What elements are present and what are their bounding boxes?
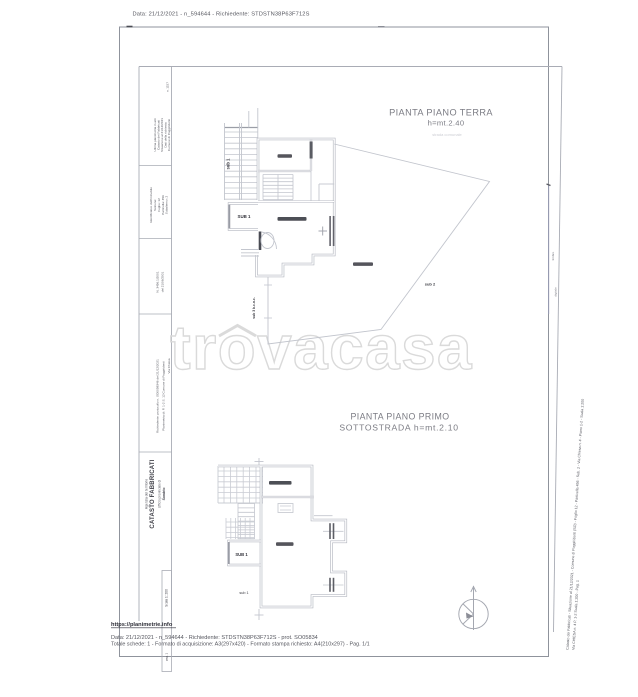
svg-text:sub 1: sub 1	[239, 591, 248, 595]
svg-text:https://planimetrie.info: https://planimetrie.info	[111, 622, 173, 628]
svg-text:strada comunale: strada comunale	[432, 132, 462, 137]
svg-text:Agenzia del territorio: Agenzia del territorio	[145, 479, 149, 509]
svg-text:CATASTO FABBRICATI: CATASTO FABBRICATI	[150, 459, 156, 528]
svg-text:Comune di Poggiridenti: Comune di Poggiridenti	[167, 119, 171, 151]
svg-text:sub 3 b.c.n.c.: sub 3 b.c.n.c.	[252, 297, 256, 319]
svg-text:timbro: timbro	[551, 251, 555, 260]
svg-text:n. 1157: n. 1157	[166, 82, 170, 92]
svg-text:h=mt.2.40: h=mt.2.40	[428, 119, 465, 128]
svg-text:Subalterno: 2: Subalterno: 2	[164, 196, 168, 215]
svg-text:Totale schede: 1 - Formato di: Totale schede: 1 - Formato di acquisizio…	[111, 642, 370, 648]
svg-text:SUB 1: SUB 1	[235, 552, 248, 557]
svg-text:trovacasa: trovacasa	[170, 314, 473, 383]
svg-text:digitale: digitale	[554, 287, 558, 297]
svg-text:Richiedente: protocollo n. SO0: Richiedente: protocollo n. SO0058346 del…	[156, 359, 160, 433]
svg-text:PIANTA PIANO TERRA: PIANTA PIANO TERRA	[389, 108, 493, 118]
svg-text:Sondrio: Sondrio	[162, 488, 166, 501]
svg-text:N. 3456.1/2001: N. 3456.1/2001	[156, 271, 160, 292]
svg-text:Data: 21/12/2021 - n_594644 -: Data: 21/12/2021 - n_594644 - Richiedent…	[111, 635, 318, 641]
svg-text:Ufficio provinciale di: Ufficio provinciale di	[157, 480, 161, 509]
svg-text:Scala 1: 200: Scala 1: 200	[164, 589, 168, 607]
svg-text:del 21/06/2001: del 21/06/2001	[161, 271, 165, 292]
svg-text:SOTTOSTRADA h=mt.2.10: SOTTOSTRADA h=mt.2.10	[339, 423, 458, 433]
svg-text:Planimetria di: P. 1-2 S. 12 C: Planimetria di: P. 1-2 S. 12 Comune di P…	[161, 361, 165, 431]
svg-text:sub 2: sub 2	[425, 282, 436, 287]
svg-text:PIANTA PIANO PRIMO: PIANTA PIANO PRIMO	[351, 412, 450, 422]
svg-text:Data: 21/12/2021 - n_594644 -: Data: 21/12/2021 - n_594644 - Richiedent…	[133, 12, 310, 18]
svg-text:pag. 1: pag. 1	[164, 652, 168, 661]
svg-text:SUB 1: SUB 1	[238, 214, 251, 219]
svg-text:sub 1: sub 1	[226, 158, 231, 170]
